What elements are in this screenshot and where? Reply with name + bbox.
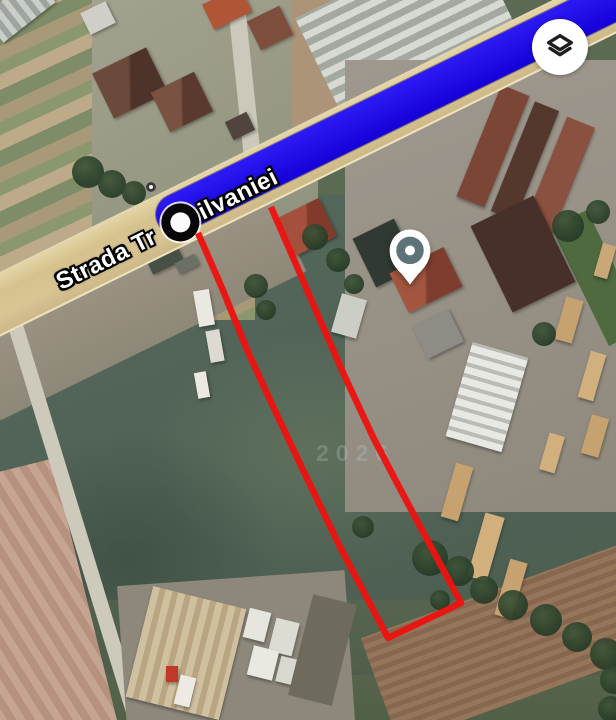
tree [444,556,474,586]
layers-button[interactable] [532,19,588,75]
tree [586,200,610,224]
tree [302,224,328,250]
tree [256,300,276,320]
tree [326,248,350,272]
poi-dot [146,182,156,192]
tree [532,322,556,346]
map-canvas[interactable]: Strada Tr silvaniei 2026 [0,0,616,720]
tree [344,274,364,294]
tree [430,590,450,610]
imagery-watermark: 2026 [316,440,395,467]
tree [244,274,268,298]
tree [552,210,584,242]
tree [498,590,528,620]
tree [412,540,448,576]
tree [562,622,592,652]
tree [598,696,616,720]
tree [470,576,498,604]
location-pin-icon[interactable] [388,228,432,286]
tree [530,604,562,636]
tree [352,516,374,538]
layers-icon [544,31,576,63]
red-roof-small-south [166,666,178,682]
